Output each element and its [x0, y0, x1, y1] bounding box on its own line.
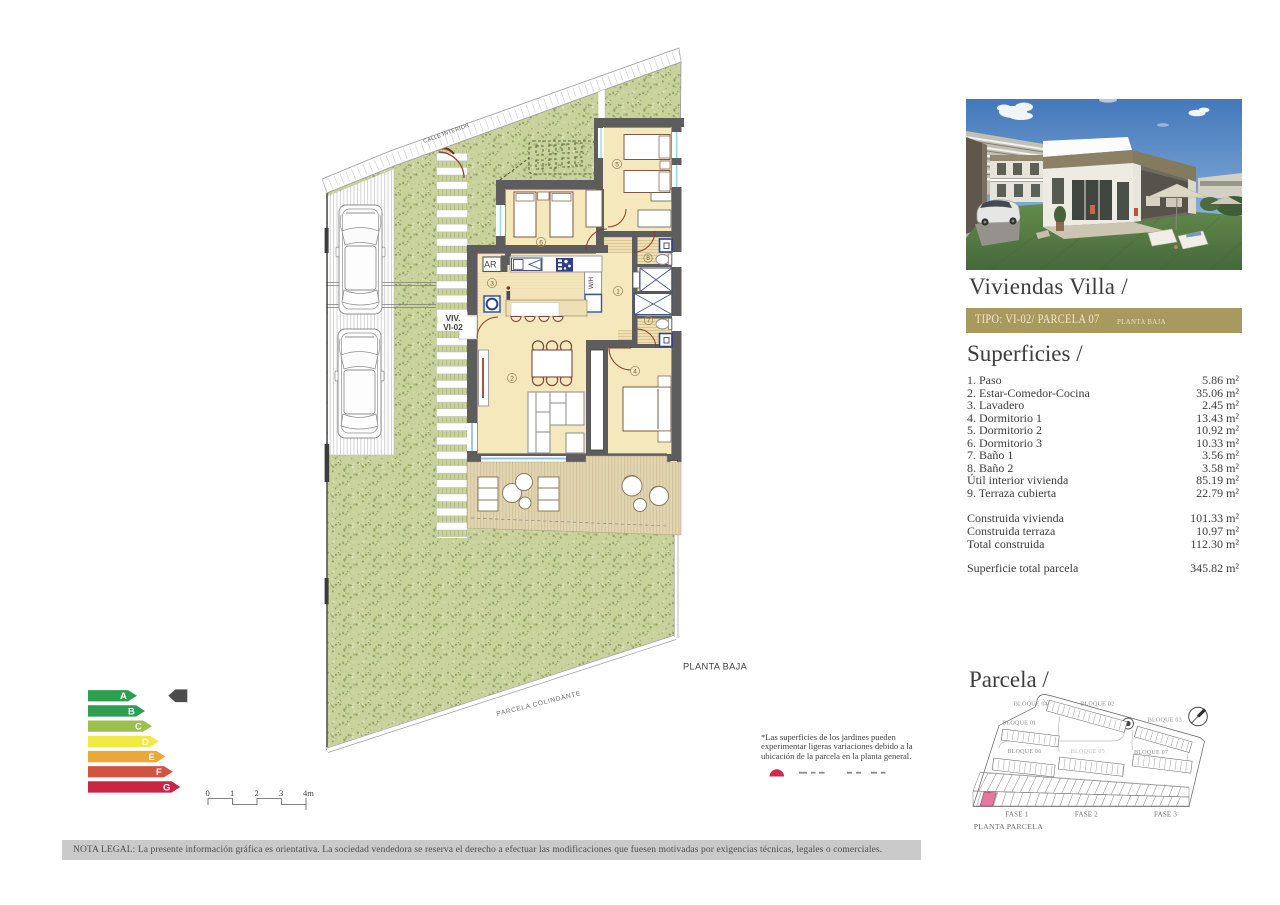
svg-text:BLOQUE 06: BLOQUE 06 — [1007, 749, 1041, 755]
svg-text:1: 1 — [616, 288, 620, 295]
svg-text:BLOQUE 03: BLOQUE 03 — [1148, 717, 1182, 723]
svg-text:4: 4 — [633, 368, 637, 375]
svg-text:FASE 3: FASE 3 — [1154, 811, 1177, 819]
svg-text:0: 0 — [206, 788, 210, 798]
svg-text:PARCELA COLINDANTE: PARCELA COLINDANTE — [496, 690, 582, 718]
svg-text:VIV.: VIV. — [446, 314, 461, 323]
svg-text:AR: AR — [484, 260, 497, 270]
svg-text:B: B — [128, 706, 135, 717]
svg-text:4m: 4m — [303, 788, 314, 798]
svg-text:G: G — [163, 782, 170, 793]
svg-text:BLOQUE 05: BLOQUE 05 — [1071, 749, 1105, 755]
svg-text:PLANTA PARCELA: PLANTA PARCELA — [974, 822, 1043, 831]
svg-text:BLOQUE 04: BLOQUE 04 — [1014, 702, 1048, 708]
svg-text:3: 3 — [279, 788, 283, 798]
svg-text:2: 2 — [255, 788, 259, 798]
svg-text:BLOQUE 07: BLOQUE 07 — [1134, 750, 1168, 756]
svg-text:7: 7 — [647, 318, 651, 325]
svg-text:BLOQUE 02: BLOQUE 02 — [1080, 702, 1114, 708]
svg-text:D: D — [142, 737, 149, 748]
svg-text:BLOQUE 01: BLOQUE 01 — [1002, 721, 1036, 727]
svg-text:1: 1 — [230, 788, 234, 798]
svg-text:F: F — [156, 767, 162, 778]
svg-text:5: 5 — [615, 161, 619, 168]
svg-text:6: 6 — [539, 239, 543, 246]
svg-text:PLANTA BAJA: PLANTA BAJA — [683, 662, 748, 672]
svg-text:W/H: W/H — [588, 277, 595, 289]
svg-text:VI-02: VI-02 — [443, 323, 463, 332]
svg-text:3: 3 — [490, 280, 494, 287]
svg-text:2: 2 — [510, 375, 514, 382]
svg-text:FASE 1: FASE 1 — [1005, 811, 1028, 819]
svg-text:FASE 2: FASE 2 — [1075, 811, 1098, 819]
svg-text:C: C — [135, 722, 142, 733]
svg-text:A: A — [120, 691, 127, 702]
svg-text:E: E — [149, 752, 155, 763]
svg-text:8: 8 — [646, 255, 650, 262]
